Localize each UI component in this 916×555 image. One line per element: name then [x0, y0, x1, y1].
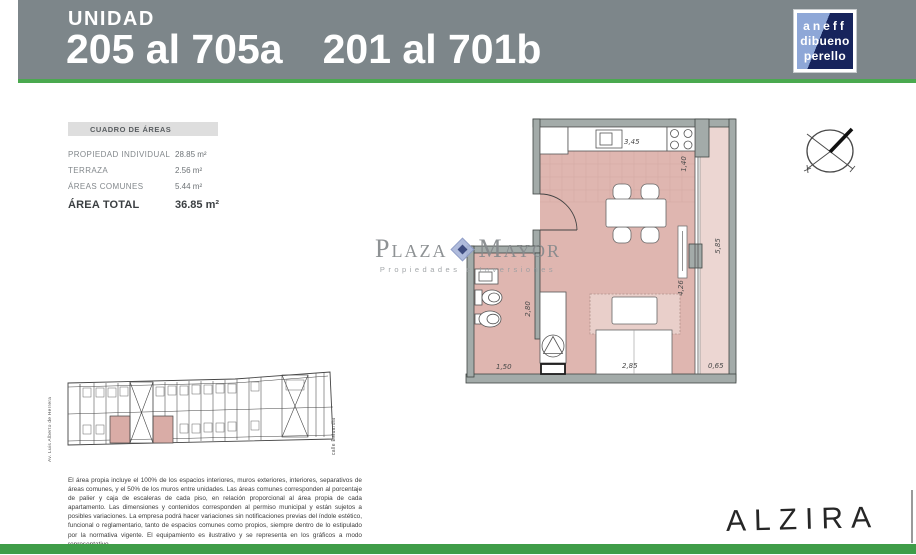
diamond-icon	[451, 237, 475, 261]
wardrobe	[540, 292, 566, 374]
area-value: 2.56 m²	[175, 166, 202, 175]
page-edge-line	[911, 490, 913, 543]
table-row: ÁREAS COMUNES 5.44 m²	[68, 178, 238, 194]
unit-range-a: 205 al 705a	[66, 26, 283, 72]
header-bar: UNIDAD 205 al 705a201 al 701b	[18, 0, 916, 83]
window-shelf	[678, 226, 687, 278]
area-label: ÁREAS COMUNES	[68, 182, 175, 191]
dim-window-height: 4,26	[677, 280, 685, 296]
footer-green-bar	[0, 544, 916, 554]
project-name: ALZIRA	[726, 501, 880, 539]
compass-icon	[798, 120, 862, 180]
site-key-plan	[60, 370, 346, 464]
watermark-word-2: Mayor	[478, 234, 560, 264]
architect-logo: aneff dibueno perello	[794, 10, 856, 72]
areas-table: CUADRO DE ÁREAS PROPIEDAD INDIVIDUAL 28.…	[68, 122, 238, 214]
street-label-right: calle Estuardia	[331, 383, 337, 455]
highlighted-unit	[110, 416, 130, 443]
street-label-left: Av. Luis Alberto de Herrera	[48, 374, 53, 462]
plaza-mayor-logo: Plaza Mayor Propiedades e Inversiones	[356, 234, 580, 274]
watermark-word-1: Plaza	[375, 234, 447, 264]
kitchen-counter	[540, 127, 667, 154]
highlighted-unit	[153, 416, 173, 443]
bathroom-fixtures	[475, 269, 502, 327]
dim-balcony-door: 1,40	[680, 156, 688, 172]
architect-name-1: aneff	[803, 19, 847, 34]
unit-numbers: 205 al 705a201 al 701b	[66, 26, 541, 73]
floorplan-sheet: UNIDAD 205 al 705a201 al 701b aneff dibu…	[0, 0, 916, 555]
table-row: TERRAZA 2.56 m²	[68, 162, 238, 178]
unit-range-b: 201 al 701b	[323, 26, 542, 72]
dim-terrace-length: 5,85	[714, 238, 722, 254]
table-row: PROPIEDAD INDIVIDUAL 28.85 m²	[68, 146, 238, 162]
area-total-value: 36.85 m²	[175, 199, 219, 211]
watermark-subtitle: Propiedades e Inversiones	[356, 265, 580, 274]
area-label: TERRAZA	[68, 166, 175, 175]
dim-bed-width: 2,85	[622, 362, 638, 370]
areas-table-title: CUADRO DE ÁREAS	[68, 122, 218, 136]
architect-name-2: dibueno	[800, 34, 849, 49]
dim-bath-width: 1,50	[496, 363, 512, 371]
architect-name-3: perello	[804, 49, 846, 64]
stove-icon	[667, 127, 695, 151]
table-row-total: ÁREA TOTAL 36.85 m²	[68, 196, 238, 214]
dim-kitchen-width: 3,45	[624, 138, 640, 146]
dim-bath-length: 2,80	[524, 301, 532, 317]
legal-disclaimer: El área propia incluye el 100% de los es…	[68, 476, 362, 549]
area-value: 5.44 m²	[175, 182, 202, 191]
area-value: 28.85 m²	[175, 150, 207, 159]
area-label: PROPIEDAD INDIVIDUAL	[68, 150, 175, 159]
area-total-label: ÁREA TOTAL	[68, 199, 175, 211]
dim-terrace-width: 0,65	[708, 362, 724, 370]
